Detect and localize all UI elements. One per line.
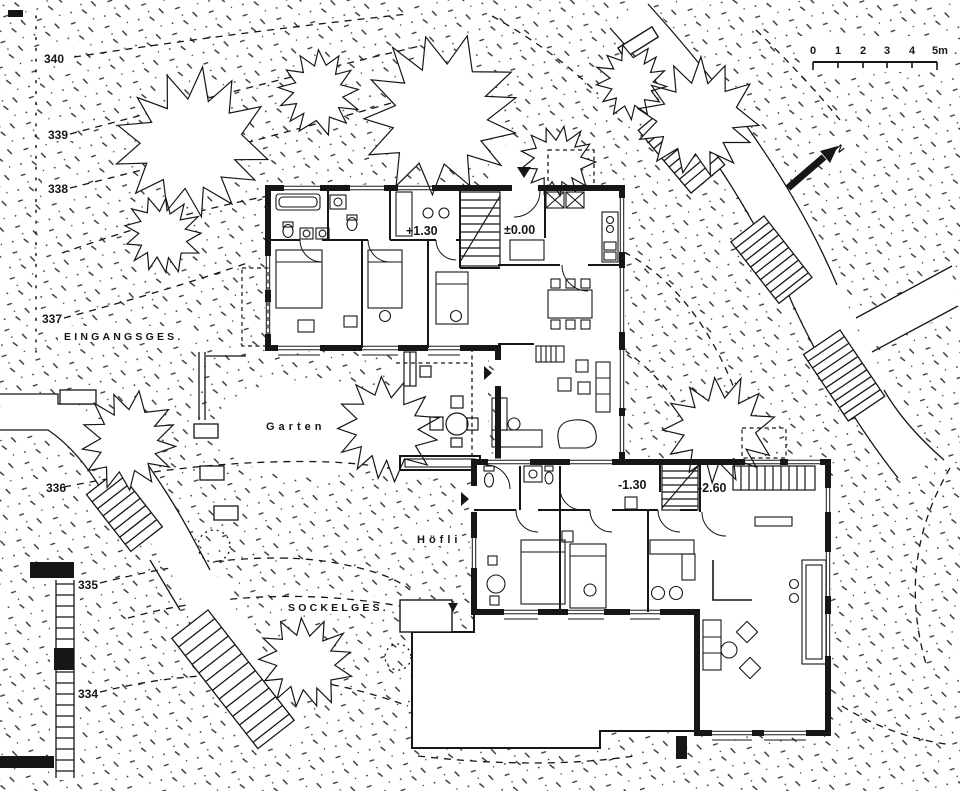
label-base-level: SOCKELGES. (288, 602, 389, 614)
level-mark-upper-entry: ±0.00 (504, 223, 535, 237)
scale-tick-3: 3 (884, 45, 890, 57)
contour-label-340: 340 (44, 52, 64, 66)
contour-label-334: 334 (78, 687, 98, 701)
contour-label-338: 338 (48, 182, 68, 196)
site-plan-canvas: +1.30 ±0.00 (0, 0, 960, 791)
site-plan-page: +1.30 ±0.00 (0, 0, 960, 791)
level-mark-lower-entry: -1.30 (618, 478, 647, 492)
scale-tick-5m: 5m (932, 45, 948, 57)
scale-tick-0: 0 (810, 45, 816, 57)
scale-tick-2: 2 (860, 45, 866, 57)
courtyard-pergola (392, 344, 488, 478)
contour-label-337: 337 (42, 312, 62, 326)
level-mark-upper-bedrooms: +1.30 (406, 224, 438, 238)
terrace (400, 600, 697, 748)
scale-tick-1: 1 (835, 45, 841, 57)
label-entrance-level: EINGANGSGES. (64, 331, 184, 343)
contour-label-335: 335 (78, 578, 98, 592)
label-garden: Garten (266, 421, 325, 433)
label-courtyard: Höfli (417, 534, 461, 546)
contour-label-339: 339 (48, 128, 68, 142)
terrace-landing (400, 600, 452, 632)
scale-tick-4: 4 (909, 45, 916, 57)
contour-label-336: 336 (46, 481, 66, 495)
